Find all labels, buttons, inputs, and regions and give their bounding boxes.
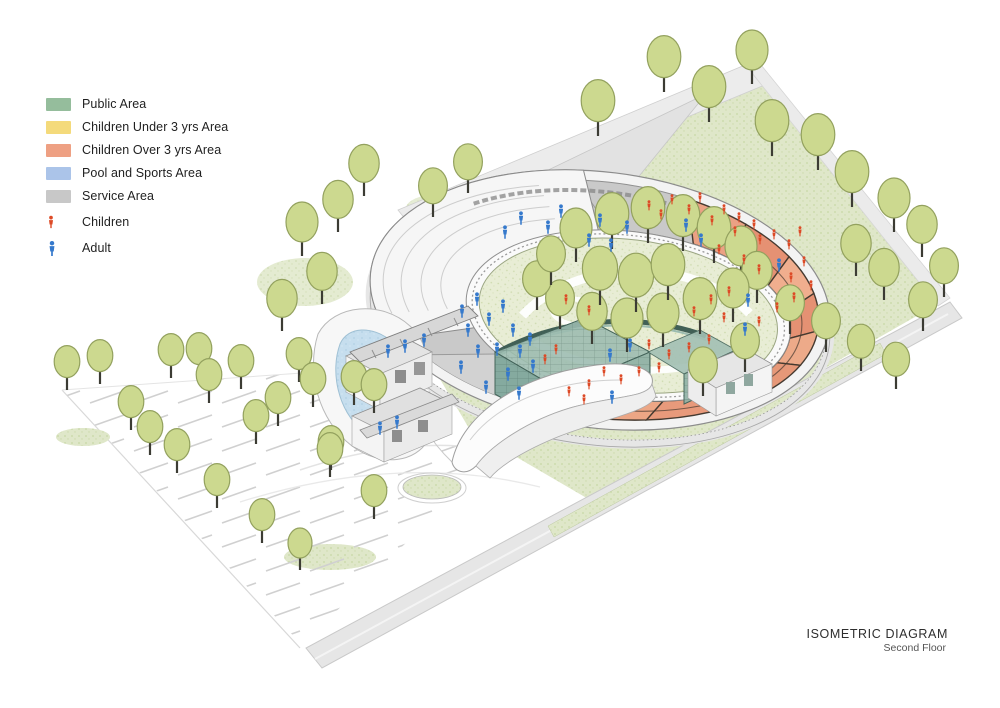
tree — [54, 346, 80, 390]
legend-item-children: Children — [46, 215, 228, 229]
children-over3-swatch — [46, 144, 71, 157]
legend-item-service-area: Service Area — [46, 189, 228, 203]
legend-label: Children Under 3 yrs Area — [82, 120, 228, 134]
window — [414, 362, 425, 375]
legend-label: Public Area — [82, 97, 146, 111]
legend-label: Service Area — [82, 189, 154, 203]
legend-item-over3-area: Children Over 3 yrs Area — [46, 143, 228, 157]
tree — [267, 279, 297, 331]
diagram-subtitle: Second Floor — [807, 642, 946, 654]
window — [418, 420, 428, 432]
tree — [286, 202, 318, 256]
diagram-title: ISOMETRIC DIAGRAM — [807, 627, 948, 641]
legend-label: Children Over 3 yrs Area — [82, 143, 221, 157]
child-figure-icon — [46, 215, 71, 229]
legend-item-pool-area: Pool and Sports Area — [46, 166, 228, 180]
window — [744, 374, 753, 386]
planter — [403, 475, 461, 499]
isometric-diagram-page: Public Area Children Under 3 yrs Area Ch… — [0, 0, 1000, 708]
tree — [87, 340, 113, 384]
window — [392, 430, 402, 442]
service-area-swatch — [46, 190, 71, 203]
legend-label: Adult — [82, 241, 111, 255]
tree — [907, 205, 937, 257]
legend-label: Children — [82, 215, 129, 229]
legend-item-public-area: Public Area — [46, 97, 228, 111]
tree — [349, 144, 379, 196]
children-under3-swatch — [46, 121, 71, 134]
adult-figure-icon — [46, 240, 71, 257]
pool-sports-swatch — [46, 167, 71, 180]
legend-label: Pool and Sports Area — [82, 166, 202, 180]
window — [726, 382, 735, 394]
tree — [158, 334, 184, 378]
public-area-swatch — [46, 98, 71, 111]
legend-item-adult: Adult — [46, 241, 228, 255]
legend-item-under3-area: Children Under 3 yrs Area — [46, 120, 228, 134]
tree — [323, 180, 353, 232]
tree — [882, 342, 909, 389]
title-block: ISOMETRIC DIAGRAM Second Floor — [807, 627, 948, 654]
window — [395, 370, 406, 383]
tree — [647, 36, 681, 92]
legend: Public Area Children Under 3 yrs Area Ch… — [46, 97, 228, 264]
